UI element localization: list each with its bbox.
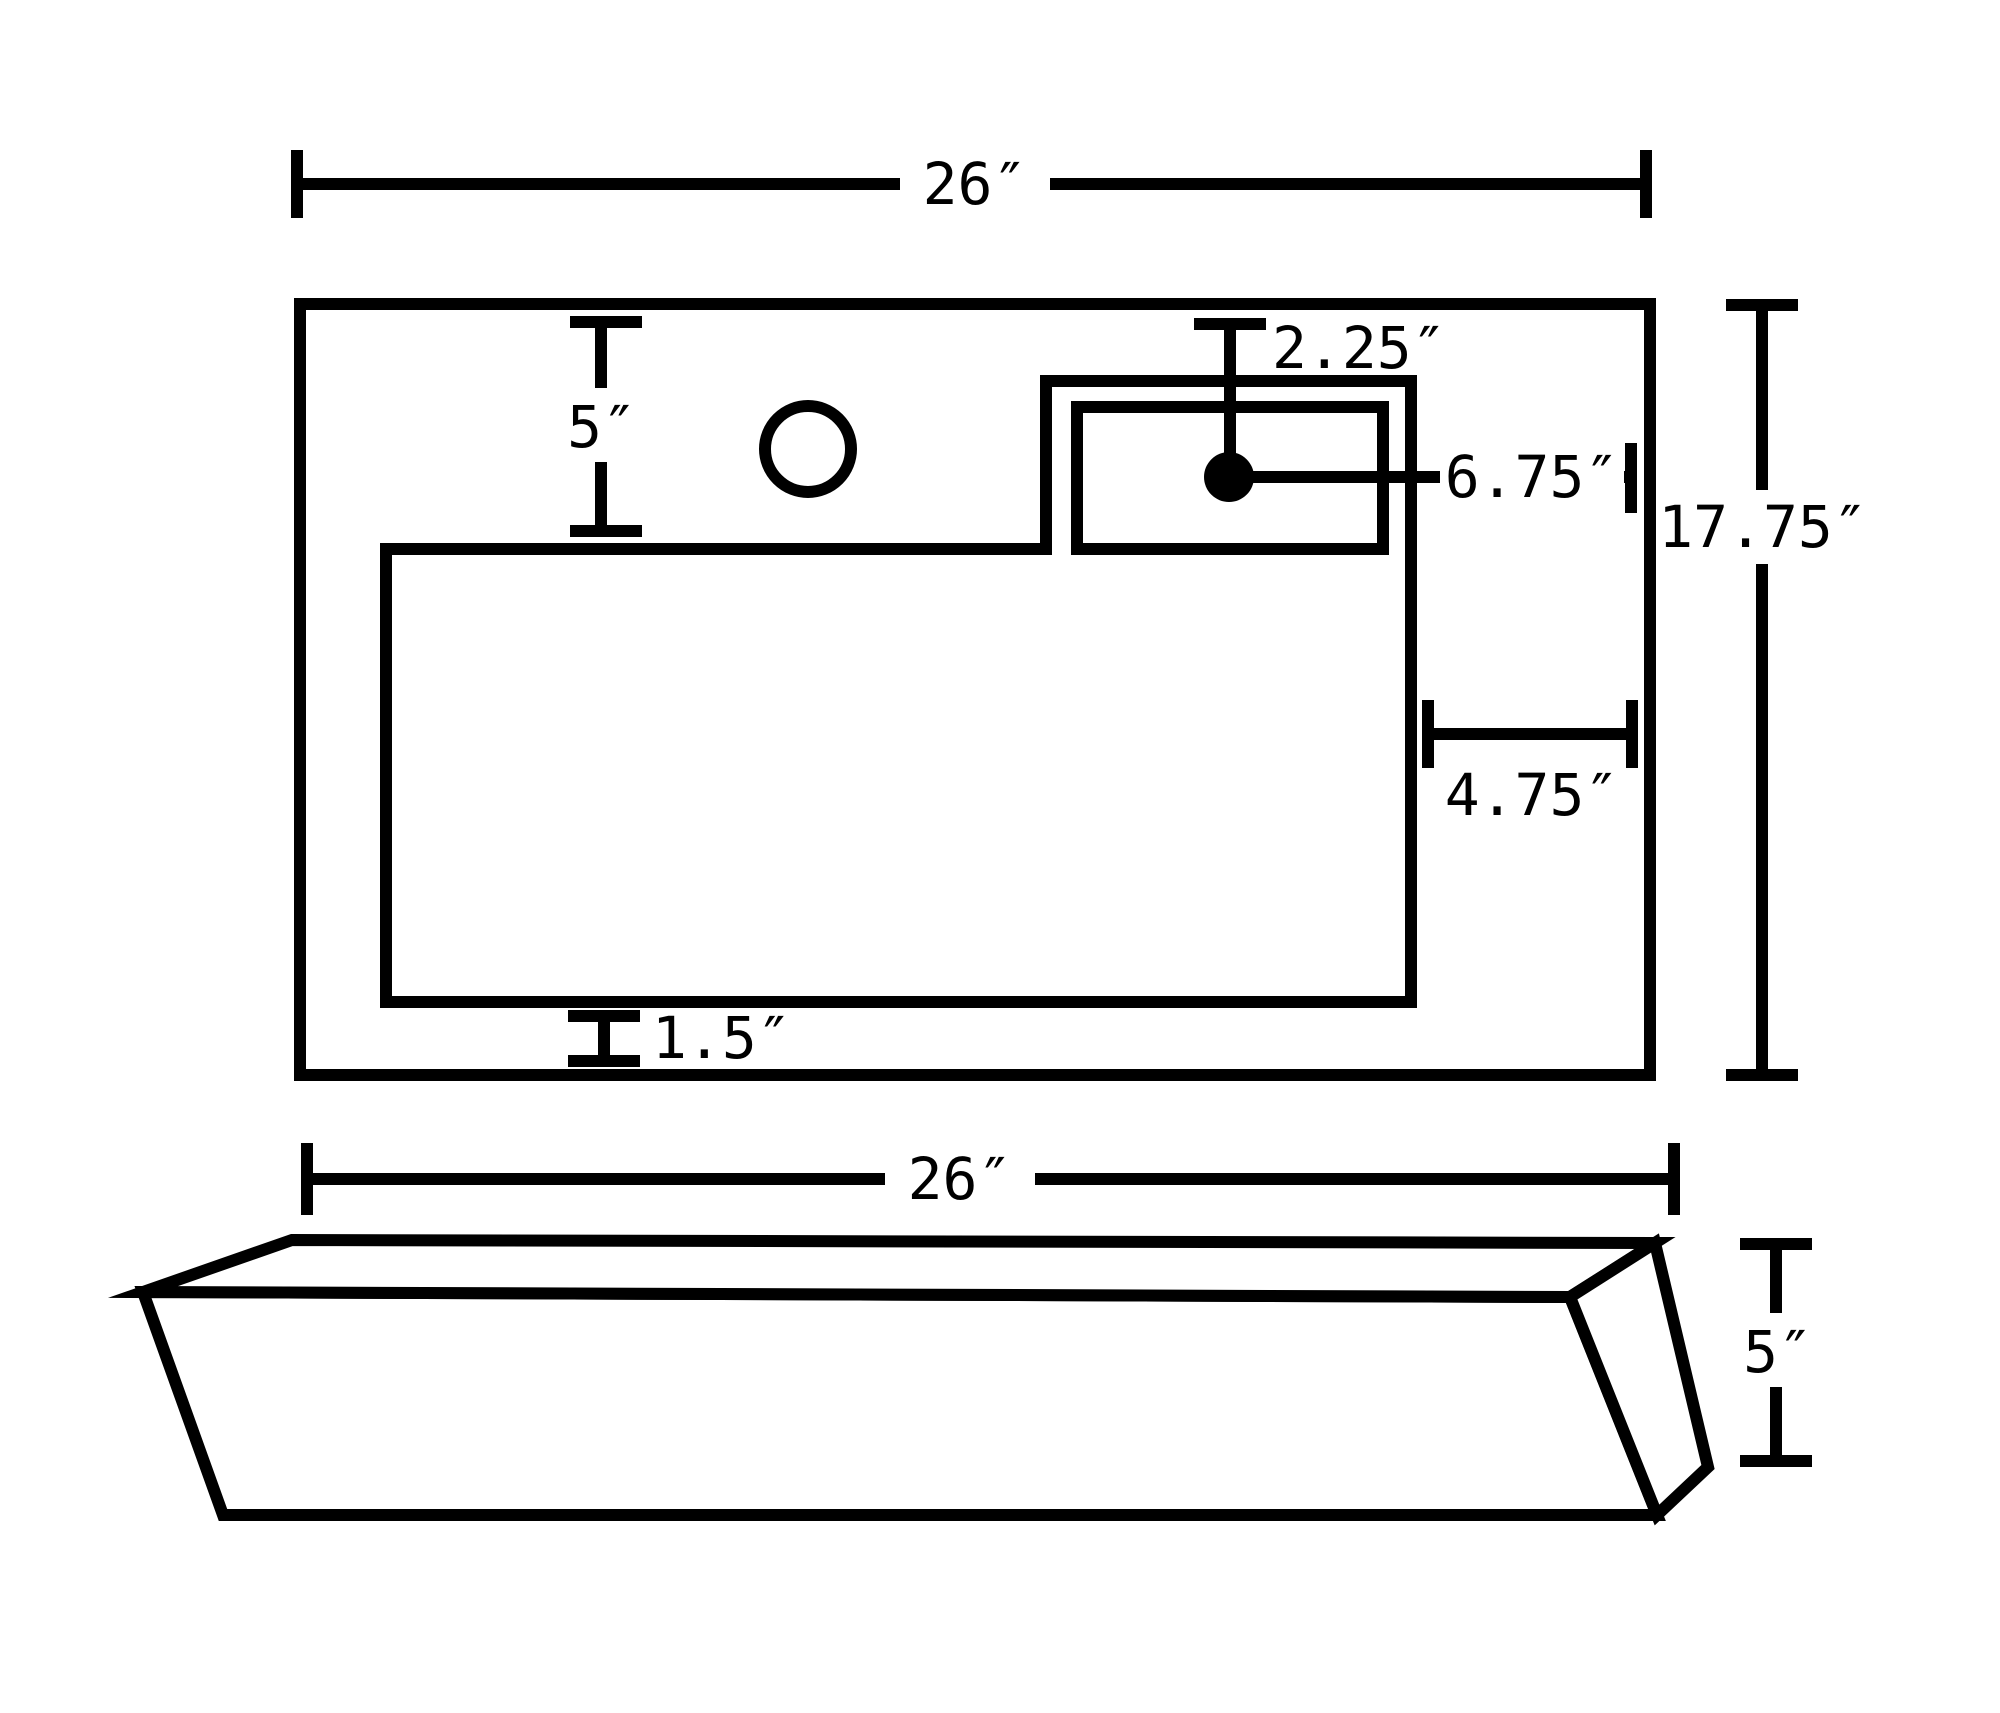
dim-tick [1625, 443, 1637, 513]
dim-label-deck-width: 4.75″ [1445, 761, 1620, 829]
dim-label-hole-from-top: 2.25″ [1272, 314, 1447, 382]
overflow-hole [765, 406, 851, 492]
dim-label-hole-from-right: 6.75″ [1445, 443, 1620, 511]
dim-deck-width: 4.75″ [1422, 700, 1638, 829]
dim-label-overall-depth: 17.75″ [1658, 493, 1868, 561]
sink-front-face [143, 1292, 1657, 1515]
dim-label-left-gap: 5″ [567, 393, 637, 461]
dim-label-overall-width-top: 26″ [923, 150, 1028, 218]
dim-label-height: 5″ [1743, 1318, 1813, 1386]
top-view: 26″ 5″ 2.25″ 6.75″ [291, 146, 1868, 1081]
dim-basin-to-front: 1.5″ [568, 1004, 792, 1072]
dim-overall-width-top: 26″ [291, 146, 1652, 222]
dim-hole-from-right: 6.75″ [1229, 443, 1637, 513]
sink-outer-rim [300, 304, 1650, 1075]
dim-label-basin-to-front: 1.5″ [652, 1004, 792, 1072]
dim-overall-width-bottom: 26″ [301, 1141, 1680, 1217]
drawing-canvas: 26″ 5″ 2.25″ 6.75″ [0, 0, 2000, 1713]
dim-left-gap: 5″ [563, 316, 642, 537]
dim-label-overall-width-bottom: 26″ [908, 1145, 1013, 1213]
dim-height: 5″ [1738, 1238, 1816, 1467]
sink-body-3d [143, 1240, 1708, 1515]
sink-top-face [143, 1240, 1655, 1297]
dim-overall-depth: 17.75″ [1658, 299, 1868, 1081]
side-view: 26″ 5″ [143, 1141, 1816, 1515]
sink-dimension-drawing: 26″ 5″ 2.25″ 6.75″ [0, 0, 2000, 1713]
